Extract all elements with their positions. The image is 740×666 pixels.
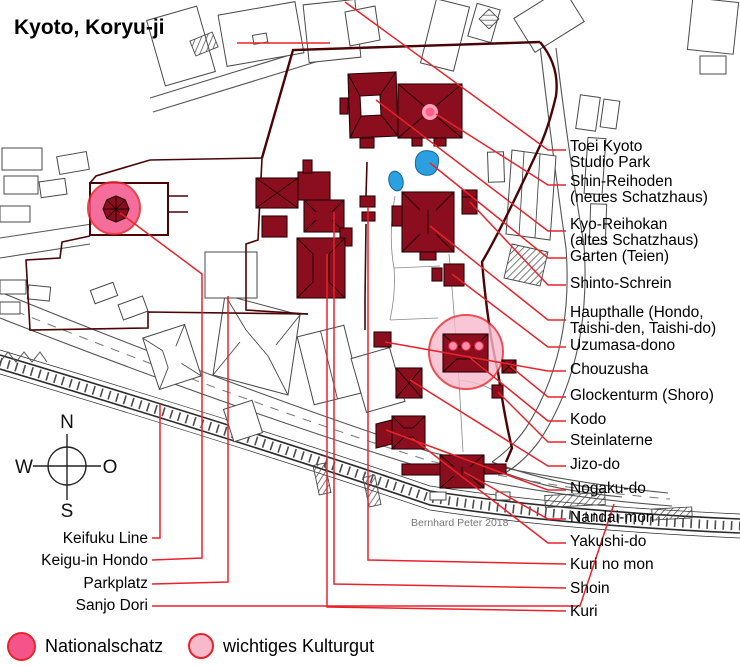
temple-precinct-walls bbox=[26, 42, 557, 462]
legend-nationalschatz-label: Nationalschatz bbox=[45, 636, 163, 657]
map-label-glockenturm: Glockenturm (Shoro) bbox=[570, 388, 714, 404]
legend-kulturgut-label: wichtiges Kulturgut bbox=[223, 636, 374, 657]
outlined-building bbox=[143, 325, 202, 390]
map-label-keifuku-line: Keifuku Line bbox=[0, 531, 148, 547]
outlined-building bbox=[118, 296, 148, 320]
outlined-building bbox=[421, 0, 470, 71]
outlined-building bbox=[223, 400, 262, 442]
building-nandai-mon bbox=[402, 455, 506, 488]
outlined-building bbox=[700, 56, 726, 74]
compass-rose: N S W O bbox=[15, 412, 117, 522]
author-watermark: Bernhard Peter 2018 bbox=[411, 517, 508, 529]
building-uzumasa-dono bbox=[432, 264, 464, 286]
outlined-building bbox=[504, 244, 548, 286]
outlined-building bbox=[2, 148, 42, 170]
compass-west: W bbox=[15, 457, 33, 478]
map-label-kuri: Kuri bbox=[570, 604, 598, 620]
map-label-steinlaterne: Steinlaterne bbox=[570, 433, 653, 449]
building-keigu-in-hondo bbox=[103, 196, 129, 222]
outlined-building bbox=[600, 99, 620, 129]
outlined-building bbox=[27, 285, 50, 301]
compass-north: N bbox=[60, 412, 74, 433]
outlined-building bbox=[0, 206, 30, 222]
outlined-building bbox=[39, 178, 67, 197]
outlined-building bbox=[576, 95, 601, 131]
map-label-kuri-no-mon: Kuri no mon bbox=[570, 557, 654, 573]
building-yakushi-do bbox=[376, 416, 425, 449]
pond bbox=[415, 151, 438, 176]
map-label-jizo-do: Jizo-do bbox=[570, 457, 620, 473]
map-label-parkplatz: Parkplatz bbox=[0, 576, 148, 592]
hall-dot-marker-core bbox=[426, 108, 435, 117]
map-label-uzumasa-dono: Uzumasa-dono bbox=[570, 338, 675, 354]
compass-east: O bbox=[103, 457, 118, 478]
kodo-dot bbox=[449, 342, 458, 351]
outlined-building bbox=[4, 176, 38, 194]
gate-kuri-no-mon bbox=[360, 196, 375, 207]
garden-ponds bbox=[387, 151, 439, 193]
outlined-building bbox=[0, 280, 26, 294]
temple-buildings bbox=[103, 72, 516, 488]
legend-nationalschatz: Nationalschatz bbox=[7, 632, 163, 661]
map-label-sanjo-dori: Sanjo Dori bbox=[0, 598, 148, 614]
building-glockenturm bbox=[502, 360, 516, 373]
map-label-chouzusha: Chouzusha bbox=[570, 362, 648, 378]
nationalschatz-legend-icon bbox=[7, 632, 36, 661]
kulturgut-legend-icon bbox=[188, 633, 214, 659]
map-label-shoin: Shoin bbox=[570, 581, 610, 597]
koryuji-map-page: N S W O Kyoto, Koryu-ji Bernhard Peter 2… bbox=[0, 0, 740, 666]
kodo-dot bbox=[462, 342, 471, 351]
kodo-dot bbox=[475, 342, 484, 351]
map-label-shinto-schrein: Shinto-Schrein bbox=[570, 276, 672, 292]
map-label-haupthalle: Haupthalle (Hondo, Taishi-den, Taishi-do… bbox=[570, 305, 716, 337]
map-label-garten: Garten (Teien) bbox=[570, 249, 669, 265]
legend-wichtiges-kulturgut: wichtiges Kulturgut bbox=[188, 633, 374, 659]
map-label-shin-reihoden: Shin-Reihoden (neues Schatzhaus) bbox=[570, 174, 708, 206]
outlined-building bbox=[57, 152, 90, 175]
building-jizo-do bbox=[396, 368, 422, 398]
map-label-kyo-reihokan: Kyo-Reihokan (altes Schatzhaus) bbox=[570, 217, 698, 249]
map-label-nandai-mon: Nandai-mon bbox=[570, 510, 654, 526]
outlined-building bbox=[90, 282, 117, 303]
outlined-building bbox=[514, 0, 584, 52]
map-label-nogaku-do: Nogaku-do bbox=[570, 481, 646, 497]
map-label-keigu-in-hondo: Keigu-in Hondo bbox=[0, 553, 148, 569]
map-label-toei-kyoto-studio-park: Toei Kyoto Studio Park bbox=[570, 139, 650, 171]
map-label-kodo: Kodo bbox=[570, 412, 606, 428]
building-chouzusha bbox=[374, 332, 391, 347]
outlined-building bbox=[687, 0, 738, 54]
outlined-building bbox=[297, 325, 361, 405]
pond bbox=[387, 170, 406, 193]
building-shinto-schrein bbox=[462, 190, 477, 214]
building-kuri-shoin-cluster bbox=[256, 160, 352, 298]
building-haupthalle bbox=[392, 192, 454, 260]
compass-south: S bbox=[61, 501, 74, 522]
page-title: Kyoto, Koryu-ji bbox=[14, 16, 165, 40]
outlined-building bbox=[0, 302, 20, 314]
parking-area bbox=[205, 252, 257, 298]
outlined-building bbox=[345, 6, 380, 46]
map-label-yakushi-do: Yakushi-do bbox=[570, 534, 646, 550]
